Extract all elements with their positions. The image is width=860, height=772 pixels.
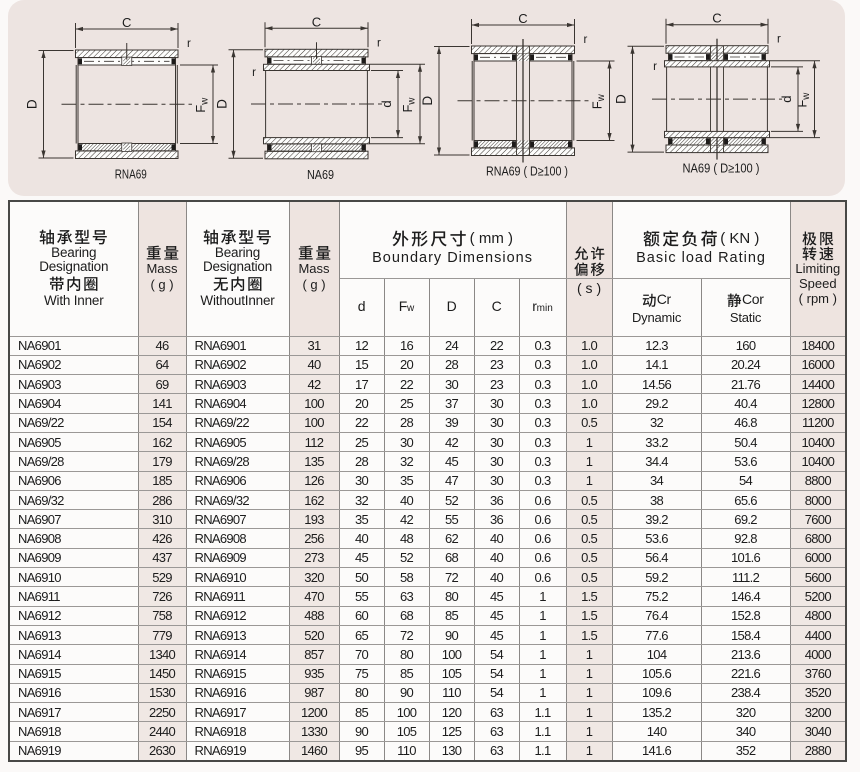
svg-text:d: d xyxy=(779,96,794,103)
svg-text:RNA69 ( D≥100 ): RNA69 ( D≥100 ) xyxy=(486,164,568,179)
svg-text:r: r xyxy=(187,38,191,50)
svg-text:D: D xyxy=(420,96,435,106)
svg-text:D: D xyxy=(215,99,230,109)
svg-text:Fw: Fw xyxy=(590,93,608,109)
svg-text:C: C xyxy=(712,11,721,26)
svg-text:r: r xyxy=(584,34,588,46)
svg-text:NA69: NA69 xyxy=(307,167,334,182)
svg-text:D: D xyxy=(25,99,40,109)
svg-text:RNA69: RNA69 xyxy=(115,167,147,182)
svg-text:r: r xyxy=(377,37,381,49)
svg-text:Fw: Fw xyxy=(795,92,813,108)
svg-text:r: r xyxy=(252,67,256,79)
svg-text:Fw: Fw xyxy=(193,97,211,113)
svg-text:d: d xyxy=(379,100,394,107)
svg-text:D: D xyxy=(614,94,629,104)
svg-text:r: r xyxy=(653,61,657,73)
svg-text:NA69 ( D≥100 ): NA69 ( D≥100 ) xyxy=(683,161,760,176)
svg-text:C: C xyxy=(312,14,321,29)
svg-text:C: C xyxy=(122,15,131,30)
svg-text:r: r xyxy=(777,34,781,46)
svg-text:C: C xyxy=(518,11,527,26)
svg-text:Fw: Fw xyxy=(400,97,418,113)
